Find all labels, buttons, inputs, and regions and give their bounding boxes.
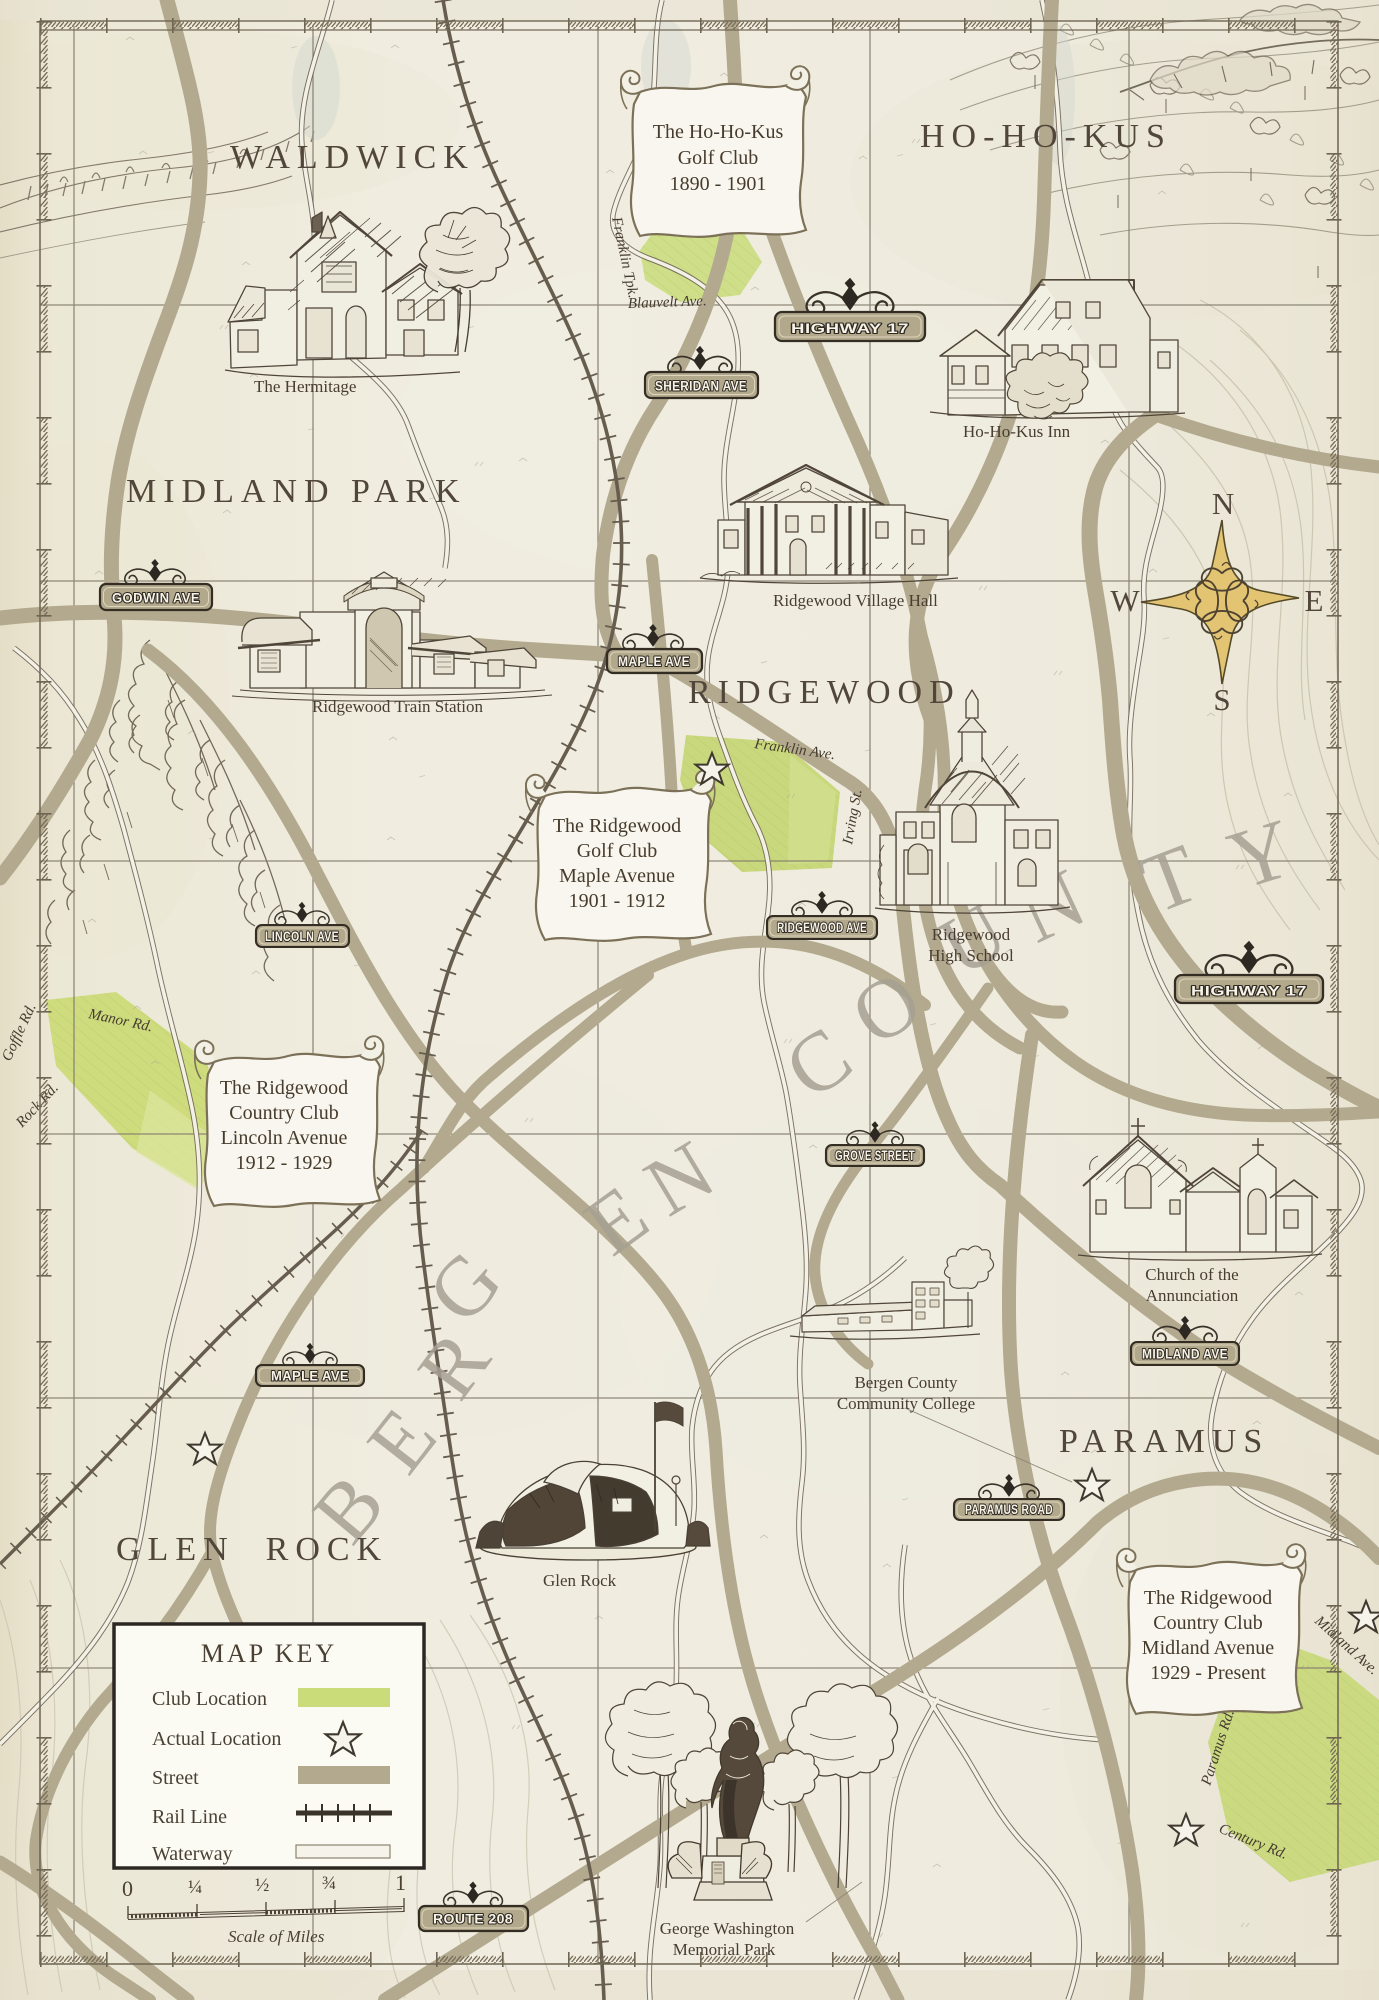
svg-text:1912 - 1929: 1912 - 1929 (236, 1152, 333, 1174)
svg-text:ROUTE 208: ROUTE 208 (433, 1912, 513, 1927)
svg-text:MAPLE AVE: MAPLE AVE (271, 1369, 349, 1384)
svg-text:1901 - 1912: 1901 - 1912 (569, 890, 666, 912)
svg-text:Golf Club: Golf Club (577, 840, 658, 862)
svg-text:¾: ¾ (322, 1873, 336, 1894)
svg-text:GODWIN AVE: GODWIN AVE (112, 591, 200, 606)
svg-text:Street: Street (152, 1767, 199, 1789)
svg-text:¼: ¼ (188, 1877, 202, 1898)
svg-text:The Ho-Ho-Kus: The Ho-Ho-Kus (653, 121, 784, 143)
svg-text:Actual Location: Actual Location (152, 1728, 281, 1750)
svg-text:PARAMUS: PARAMUS (1059, 1423, 1269, 1460)
svg-text:RIDGEWOOD AVE: RIDGEWOOD AVE (777, 920, 867, 935)
svg-text:Community College: Community College (837, 1394, 975, 1413)
svg-text:Maple Avenue: Maple Avenue (559, 865, 675, 887)
svg-text:Ridgewood Village Hall: Ridgewood Village Hall (773, 591, 938, 610)
svg-text:Midland Avenue: Midland Avenue (1142, 1637, 1275, 1659)
svg-text:RIDGEWOOD: RIDGEWOOD (688, 674, 961, 711)
svg-text:WALDWICK: WALDWICK (230, 139, 475, 176)
svg-text:S: S (1213, 682, 1230, 717)
svg-text:Ridgewood: Ridgewood (932, 925, 1011, 944)
svg-text:Ho-Ho-Kus Inn: Ho-Ho-Kus Inn (963, 422, 1071, 441)
svg-text:The Ridgewood: The Ridgewood (1144, 1587, 1272, 1609)
svg-text:Glen Rock: Glen Rock (543, 1571, 617, 1590)
svg-text:GLEN ROCK: GLEN ROCK (116, 1531, 388, 1568)
svg-text:MAPLE AVE: MAPLE AVE (618, 654, 690, 669)
svg-text:LINCOLN AVE: LINCOLN AVE (265, 929, 339, 944)
svg-text:1: 1 (395, 1870, 406, 1895)
svg-text:HO-HO-KUS: HO-HO-KUS (920, 118, 1172, 155)
svg-text:MAP KEY: MAP KEY (201, 1639, 337, 1668)
svg-text:PARAMUS ROAD: PARAMUS ROAD (965, 1502, 1053, 1517)
svg-text:Club Location: Club Location (152, 1688, 267, 1710)
svg-text:HIGHWAY 17: HIGHWAY 17 (1191, 984, 1307, 999)
svg-text:W: W (1110, 583, 1140, 618)
svg-text:Rail Line: Rail Line (152, 1806, 227, 1828)
svg-text:The Ridgewood: The Ridgewood (553, 815, 681, 837)
svg-text:½: ½ (255, 1875, 269, 1896)
svg-text:Ridgewood Train Station: Ridgewood Train Station (312, 697, 483, 716)
svg-text:SHERIDAN AVE: SHERIDAN AVE (655, 379, 747, 394)
svg-text:Country Club: Country Club (1153, 1612, 1262, 1634)
svg-text:Lincoln Avenue: Lincoln Avenue (221, 1127, 348, 1149)
svg-text:MIDLAND PARK: MIDLAND PARK (126, 473, 467, 510)
svg-text:Scale of Miles: Scale of Miles (228, 1927, 325, 1946)
svg-text:The Ridgewood: The Ridgewood (220, 1077, 348, 1099)
svg-text:MIDLAND AVE: MIDLAND AVE (1142, 1347, 1228, 1362)
svg-text:The Hermitage: The Hermitage (254, 377, 356, 396)
svg-text:George Washington: George Washington (660, 1919, 795, 1938)
svg-text:GROVE STREET: GROVE STREET (835, 1148, 915, 1163)
svg-text:E: E (1305, 583, 1324, 618)
svg-text:High School: High School (928, 946, 1014, 965)
svg-text:0: 0 (122, 1876, 133, 1901)
svg-text:Church of the: Church of the (1145, 1265, 1238, 1284)
svg-text:Country Club: Country Club (229, 1102, 338, 1124)
svg-text:N: N (1212, 486, 1234, 521)
svg-text:Bergen County: Bergen County (854, 1373, 958, 1392)
svg-text:Golf Club: Golf Club (678, 147, 759, 169)
svg-text:Blauvelt Ave.: Blauvelt Ave. (628, 293, 707, 312)
svg-text:HIGHWAY 17: HIGHWAY 17 (791, 321, 909, 336)
svg-text:1929 - Present: 1929 - Present (1150, 1662, 1266, 1684)
svg-text:Annunciation: Annunciation (1146, 1286, 1239, 1305)
svg-text:1890 - 1901: 1890 - 1901 (670, 173, 767, 195)
svg-text:Waterway: Waterway (152, 1843, 233, 1865)
